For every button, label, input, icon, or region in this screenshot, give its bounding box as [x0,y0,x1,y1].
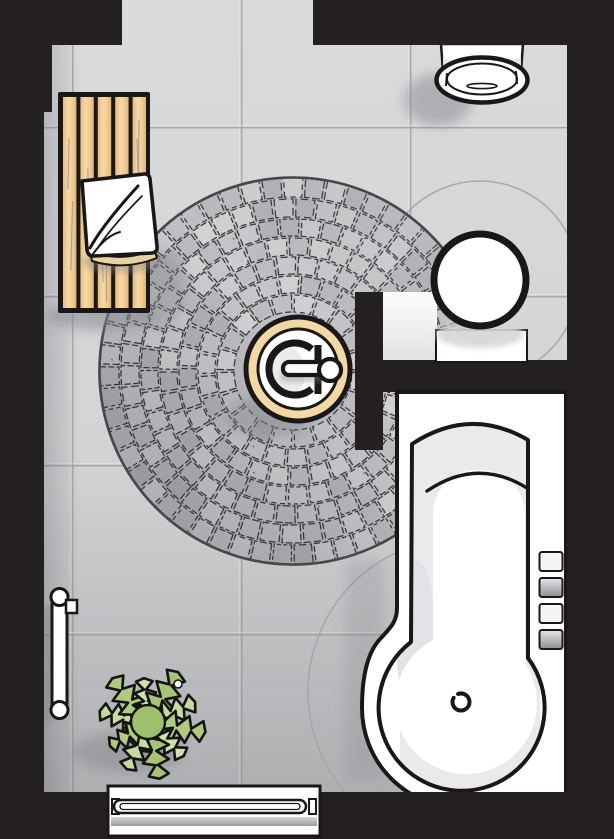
tub-side-fitting [540,578,563,597]
wall-right [567,0,614,839]
urinal-rim-tick-right [516,71,517,84]
radiator-slat [114,800,306,813]
radiator-gray-band [111,817,317,826]
wall-left [0,112,44,839]
tub-side-fitting [540,630,563,649]
plant-center [131,705,165,739]
urinal-rim-tick-left [446,73,447,86]
washbasin-bowl [434,234,526,326]
towel-rail-end-bottom [51,702,68,719]
pedestal-washbasin [434,234,527,362]
towel-rail-bracket [66,600,77,613]
bench-slat [63,97,76,308]
wall-top-left-block [0,0,122,45]
partition-horizontal-stub [383,360,567,392]
tub-interior [395,400,540,800]
tub-side-fitting [540,552,563,571]
wall-left-step [0,45,52,112]
partition-vertical-stub [355,292,383,450]
plant-highlight-tip [174,680,182,688]
floorplan-stage [0,0,614,839]
radiator-end-cap-right [309,799,316,814]
tub-side-fitting [540,604,563,623]
bathroom-floorplan [0,0,614,839]
urinal-drain-slit [467,83,497,88]
cushion [82,174,162,273]
radiator-bench [108,786,320,836]
tap-knob [319,359,341,381]
